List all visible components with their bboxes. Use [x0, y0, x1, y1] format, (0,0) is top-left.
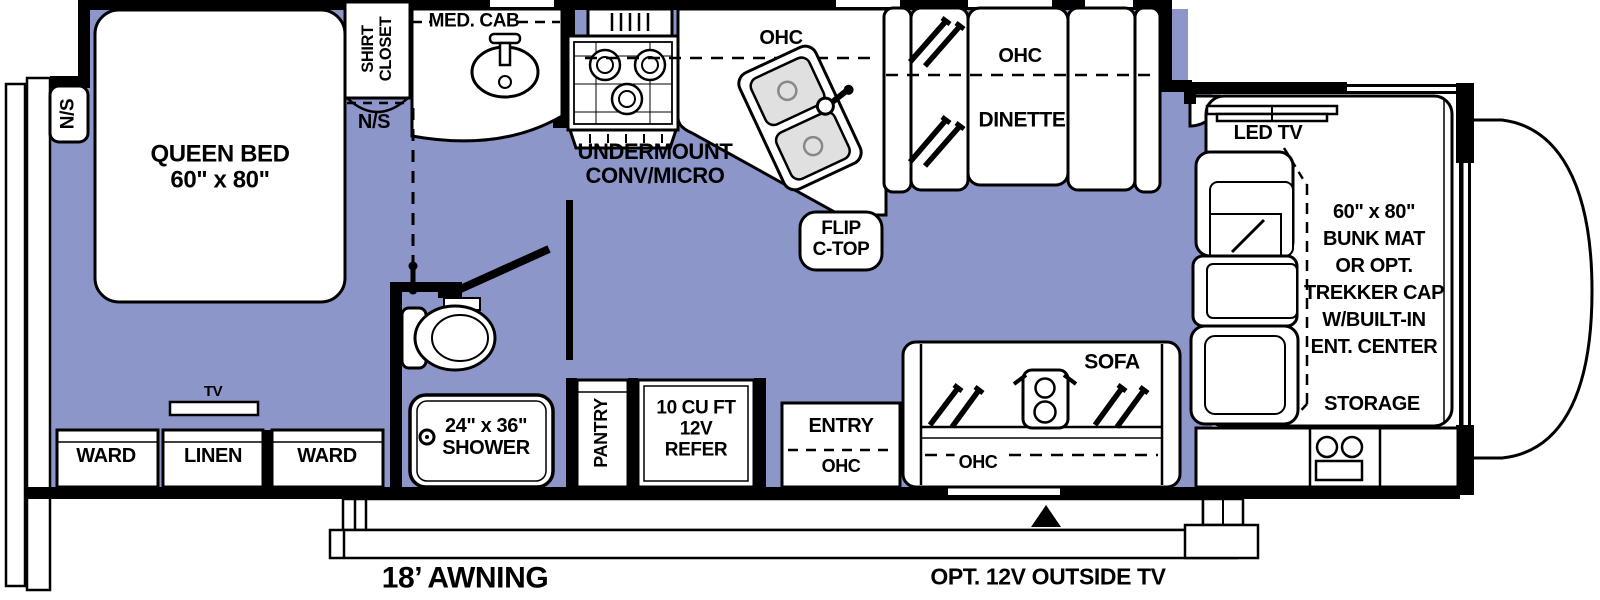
label-bunk-mat-6: ENT. CENTER	[1304, 334, 1444, 361]
label-shower-2: SHOWER	[442, 437, 530, 459]
toilet	[402, 306, 495, 370]
awning-bar	[330, 499, 1237, 558]
cab-dash	[1196, 428, 1458, 487]
label-queen-bed: QUEEN BED 60" x 80"	[150, 142, 289, 195]
label-sofa: SOFA	[1084, 350, 1140, 373]
label-tv: TV	[204, 384, 222, 401]
label-undermount-1: UNDERMOUNT	[578, 140, 733, 164]
label-shirt-closet-2: CLOSET	[377, 17, 395, 82]
label-bunk-mat-3: OR OPT.	[1304, 253, 1444, 280]
label-ohc-kitchen: OHC	[759, 27, 802, 49]
label-ward-left: WARD	[76, 445, 136, 467]
label-undermount-2: CONV/MICRO	[578, 164, 733, 188]
label-shirt-closet-1: SHIRT	[359, 17, 377, 82]
label-entry-ohc: OHC	[822, 457, 861, 477]
cab-steps	[1191, 152, 1298, 424]
label-flip-ctop: FLIP C-TOP	[813, 219, 870, 261]
label-shower: 24" x 36" SHOWER	[442, 415, 530, 459]
bedroom-tv	[170, 402, 258, 415]
label-storage: STORAGE	[1324, 393, 1420, 415]
label-awning: 18’ AWNING	[382, 562, 549, 595]
label-queen-bed-1: QUEEN BED	[150, 142, 289, 168]
label-bunk-mat-5: W/BUILT-IN	[1304, 307, 1444, 334]
label-refer-3: REFER	[656, 440, 735, 461]
label-bunk-mat-4: TREKKER CAP	[1304, 280, 1444, 307]
label-nightstand-right: N/S	[358, 111, 390, 133]
range-vent	[588, 9, 672, 36]
label-bunk-mat-2: BUNK MAT	[1304, 226, 1444, 253]
label-sofa-ohc: OHC	[955, 453, 1002, 473]
label-outside-tv: OPT. 12V OUTSIDE TV	[930, 564, 1165, 589]
sofa-console-cupholders	[1014, 370, 1076, 428]
label-refer-1: 10 CU FT	[656, 399, 735, 420]
cooktop	[568, 36, 678, 148]
label-refer: 10 CU FT 12V REFER	[656, 399, 735, 462]
label-ward-right: WARD	[297, 445, 357, 467]
rear-cap	[6, 78, 50, 590]
label-ohc-dinette: OHC	[998, 45, 1041, 67]
label-shirt-closet: SHIRT CLOSET	[359, 17, 395, 82]
cab-hood	[1462, 120, 1592, 458]
label-led-tv: LED TV	[1234, 122, 1303, 144]
label-pantry: PANTRY	[592, 398, 612, 468]
label-refer-2: 12V	[656, 420, 735, 441]
dinette-booth	[884, 8, 1160, 192]
label-nightstand-left: N/S	[59, 99, 80, 129]
window	[948, 487, 1060, 499]
led-tv-icon	[1207, 106, 1337, 121]
label-shower-1: 24" x 36"	[442, 415, 530, 437]
label-bunk-mat-1: 60" x 80"	[1304, 199, 1444, 226]
label-dinette: DINETTE	[978, 108, 1065, 131]
label-flip-ctop-1: FLIP	[813, 219, 870, 240]
label-queen-bed-2: 60" x 80"	[150, 168, 289, 194]
label-med-cab: MED. CAB	[429, 12, 520, 33]
label-bunk-mat: 60" x 80" BUNK MAT OR OPT. TREKKER CAP W…	[1304, 199, 1444, 361]
label-entry: ENTRY	[808, 415, 873, 437]
label-linen: LINEN	[184, 445, 242, 467]
label-flip-ctop-2: C-TOP	[813, 240, 870, 261]
dinette-table	[968, 8, 1068, 185]
label-undermount: UNDERMOUNT CONV/MICRO	[578, 140, 733, 188]
floorplan-canvas: N/S QUEEN BED 60" x 80" SHIRT CLOSET N/S…	[0, 0, 1600, 600]
